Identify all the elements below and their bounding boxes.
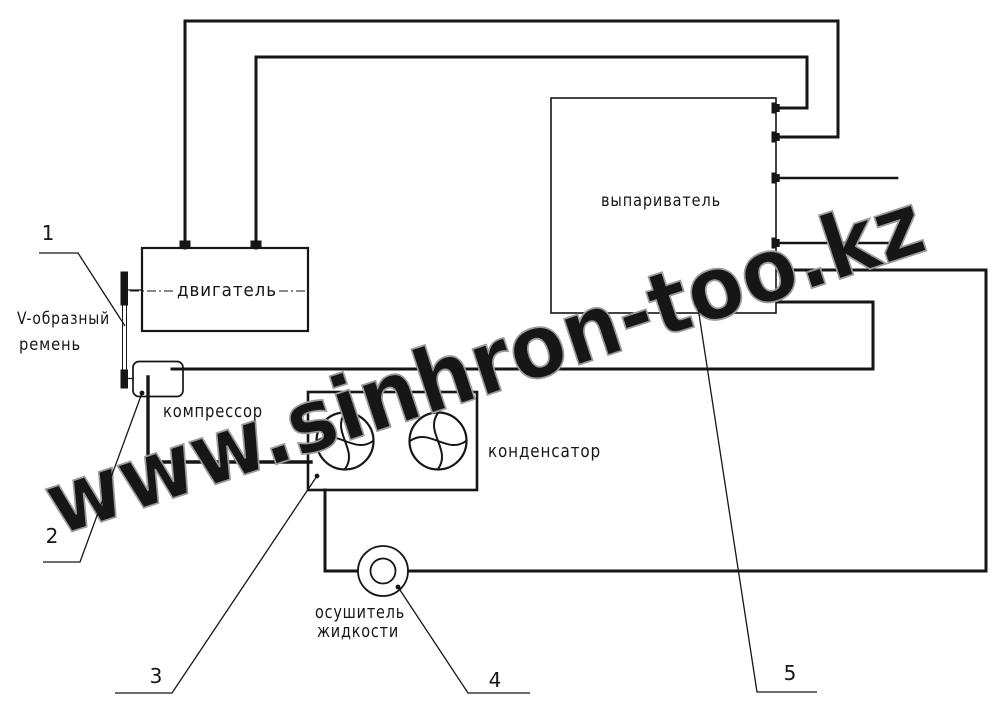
- leader-5: [695, 288, 817, 692]
- upper-pulley-icon: [121, 272, 129, 306]
- dryer-inner-circle: [371, 559, 396, 584]
- condenser-label: конденсатор: [488, 441, 601, 462]
- leader-4: [398, 587, 530, 693]
- fitting-icon: [251, 241, 262, 248]
- lower-pulley-icon: [121, 370, 129, 389]
- evaporator-label: выпариватель: [601, 191, 721, 211]
- leader-dot: [315, 474, 320, 479]
- pipe-fittings: [180, 103, 780, 249]
- v-belt-label-line1: V-образный: [17, 309, 110, 329]
- v-belt-drive: [121, 272, 143, 389]
- pulley-shaft-links: [128, 290, 142, 379]
- diagram-canvas: www.sinhron-too.kz двигатель выпаривател…: [0, 0, 1000, 724]
- liquid-dryer: [358, 546, 408, 596]
- leader-dot: [140, 391, 145, 396]
- callout-number-5: 5: [784, 661, 797, 685]
- callout-number-1: 1: [42, 221, 55, 245]
- callout-number-3: 3: [150, 664, 163, 688]
- pipe-engine-evaporator-inner: [256, 57, 807, 248]
- callout-number-2: 2: [46, 524, 59, 548]
- liquid-dryer-label-line2: жидкости: [317, 621, 399, 642]
- pipe-engine-evaporator-outer: [185, 21, 838, 248]
- watermark-text: www.sinhron-too.kz: [32, 171, 936, 556]
- watermark: www.sinhron-too.kz: [32, 171, 936, 556]
- v-belt-label-line2: ремень: [19, 335, 81, 355]
- leader-dot: [396, 585, 401, 590]
- fitting-icon: [180, 241, 191, 248]
- callout-number-4: 4: [489, 668, 502, 692]
- engine-label: двигатель: [177, 280, 277, 301]
- liquid-dryer-label-line1: осушитель: [315, 602, 405, 623]
- refrigeration-system-diagram: www.sinhron-too.kz двигатель выпаривател…: [0, 0, 1000, 724]
- compressor-label: компрессор: [163, 401, 263, 422]
- leader-dot: [693, 286, 698, 291]
- belt-lines: [123, 305, 127, 370]
